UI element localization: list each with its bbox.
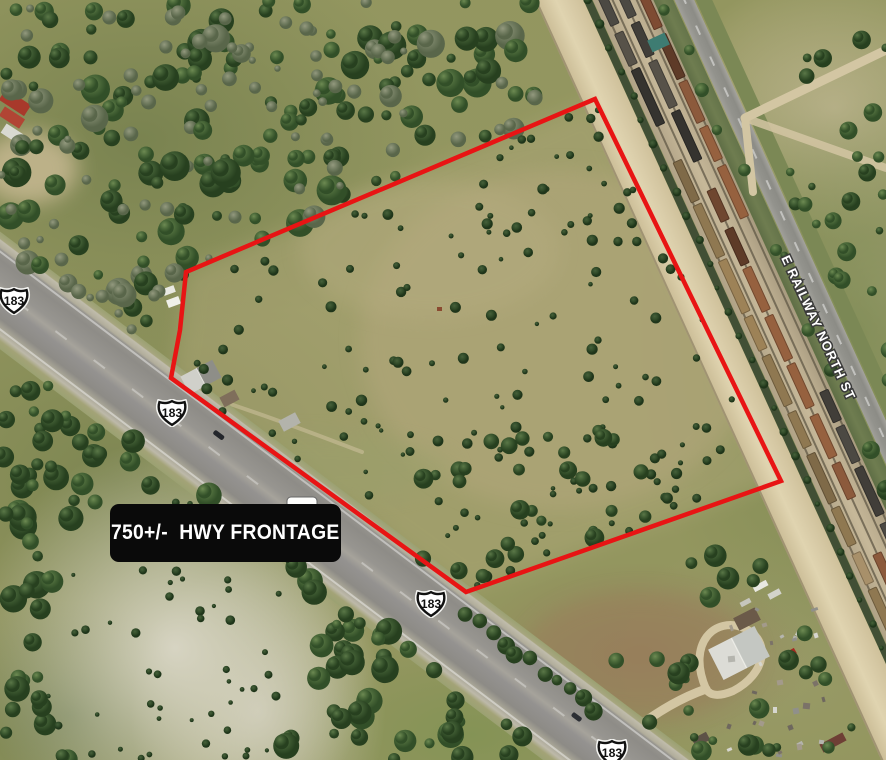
- us-route-shield-icon: 183: [595, 739, 629, 760]
- us-route-shield-icon: 183: [414, 590, 448, 618]
- us-route-shield-icon: 183: [0, 287, 31, 315]
- street-name-label: E RAILWAY NORTH ST: [778, 253, 858, 403]
- frontage-label-text: 750+/- HWY FRONTAGE: [111, 521, 340, 545]
- annotation-overlay: E RAILWAY NORTH ST: [0, 0, 886, 760]
- svg-text:183: 183: [421, 597, 442, 611]
- svg-text:183: 183: [602, 746, 623, 760]
- frontage-label: 750+/- HWY FRONTAGE: [110, 504, 341, 562]
- aerial-map: E RAILWAY NORTH ST 750+/- HWY FRONTAGE 1…: [0, 0, 886, 760]
- us-route-shield-icon: 183: [155, 399, 189, 427]
- svg-text:183: 183: [4, 294, 25, 308]
- svg-text:183: 183: [162, 406, 183, 420]
